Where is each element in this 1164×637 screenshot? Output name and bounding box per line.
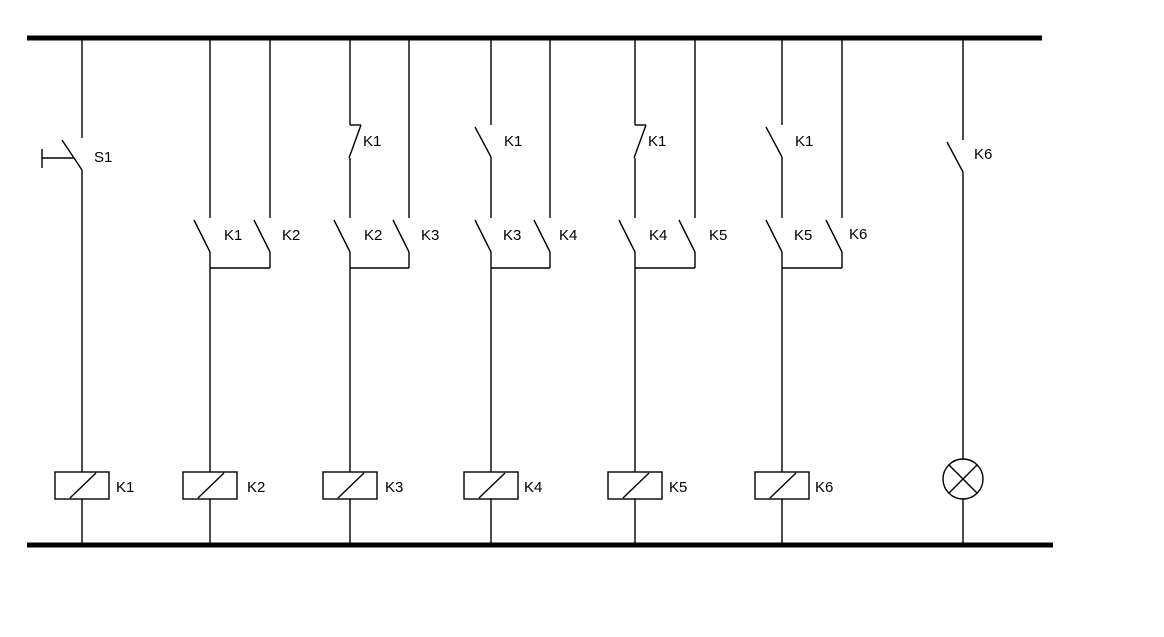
coil-k3-label: K3 bbox=[385, 479, 403, 496]
contact-k1-no-blade bbox=[475, 127, 491, 157]
contact-blade bbox=[634, 125, 646, 158]
contact-k4-no-blade bbox=[619, 220, 635, 252]
coil-k1-label: K1 bbox=[116, 479, 134, 496]
rung7-series-contact-label: K6 bbox=[974, 146, 992, 163]
rung6-contact2-label: K6 bbox=[849, 226, 867, 243]
rung-3: K1 K2 K3 K3 bbox=[323, 40, 439, 543]
rung-7: K6 bbox=[943, 40, 992, 543]
schematic-canvas: S1 K1 K1 K2 K2 K1 bbox=[0, 0, 1164, 637]
indicator-lamp bbox=[943, 459, 983, 499]
rung4-contact1-label: K3 bbox=[503, 227, 521, 244]
rung4-contact2-label: K4 bbox=[559, 227, 577, 244]
rung2-contact1-label: K1 bbox=[224, 227, 242, 244]
rung4-series-contact-label: K1 bbox=[504, 133, 522, 150]
rung-5: K1 K4 K5 K5 bbox=[608, 40, 727, 543]
rung6-contact1-label: K5 bbox=[794, 227, 812, 244]
rung-2: K1 K2 K2 bbox=[183, 40, 300, 543]
rung2-contact2-label: K2 bbox=[282, 227, 300, 244]
rung-6: K1 K5 K6 K6 bbox=[755, 40, 867, 543]
contact-k1-nc bbox=[634, 125, 646, 158]
coil-k2 bbox=[183, 472, 237, 499]
contact-k3-no-blade bbox=[393, 220, 409, 252]
rung-4: K1 K3 K4 K4 bbox=[464, 40, 577, 543]
coil-k5 bbox=[608, 472, 662, 499]
contact-k1-nc bbox=[349, 125, 361, 158]
contact-k1-no-blade bbox=[194, 220, 210, 252]
contact-blade bbox=[349, 125, 361, 158]
rung5-series-contact-label: K1 bbox=[648, 133, 666, 150]
coil-k2-label: K2 bbox=[247, 479, 265, 496]
rung-1: S1 K1 bbox=[42, 40, 134, 543]
ladder-diagram: S1 K1 K1 K2 K2 K1 bbox=[0, 0, 1164, 637]
pushbutton-s1-no-contact bbox=[42, 140, 82, 170]
coil-k1 bbox=[55, 472, 109, 499]
contact-k5-no-blade bbox=[679, 220, 695, 252]
coil-k6 bbox=[755, 472, 809, 499]
rung3-contact2-label: K3 bbox=[421, 227, 439, 244]
contact-k3-no-blade bbox=[475, 220, 491, 252]
coil-k4-label: K4 bbox=[524, 479, 542, 496]
rung3-series-contact-label: K1 bbox=[363, 133, 381, 150]
contact-k1-no-blade bbox=[766, 127, 782, 157]
coil-k6-label: K6 bbox=[815, 479, 833, 496]
contact-k6-no-blade bbox=[947, 142, 963, 172]
contact-k2-no-blade bbox=[254, 220, 270, 252]
rung3-contact1-label: K2 bbox=[364, 227, 382, 244]
contact-k5-no-blade bbox=[766, 220, 782, 252]
contact-k4-no-blade bbox=[534, 220, 550, 252]
rung5-contact1-label: K4 bbox=[649, 227, 667, 244]
rung1-pushbutton-label: S1 bbox=[94, 149, 112, 166]
contact-k2-no-blade bbox=[334, 220, 350, 252]
contact-k6-no-blade bbox=[826, 220, 842, 252]
contact-blade bbox=[62, 140, 82, 170]
rung5-contact2-label: K5 bbox=[709, 227, 727, 244]
coil-k5-label: K5 bbox=[669, 479, 687, 496]
coil-k3 bbox=[323, 472, 377, 499]
rung6-series-contact-label: K1 bbox=[795, 133, 813, 150]
coil-k4 bbox=[464, 472, 518, 499]
